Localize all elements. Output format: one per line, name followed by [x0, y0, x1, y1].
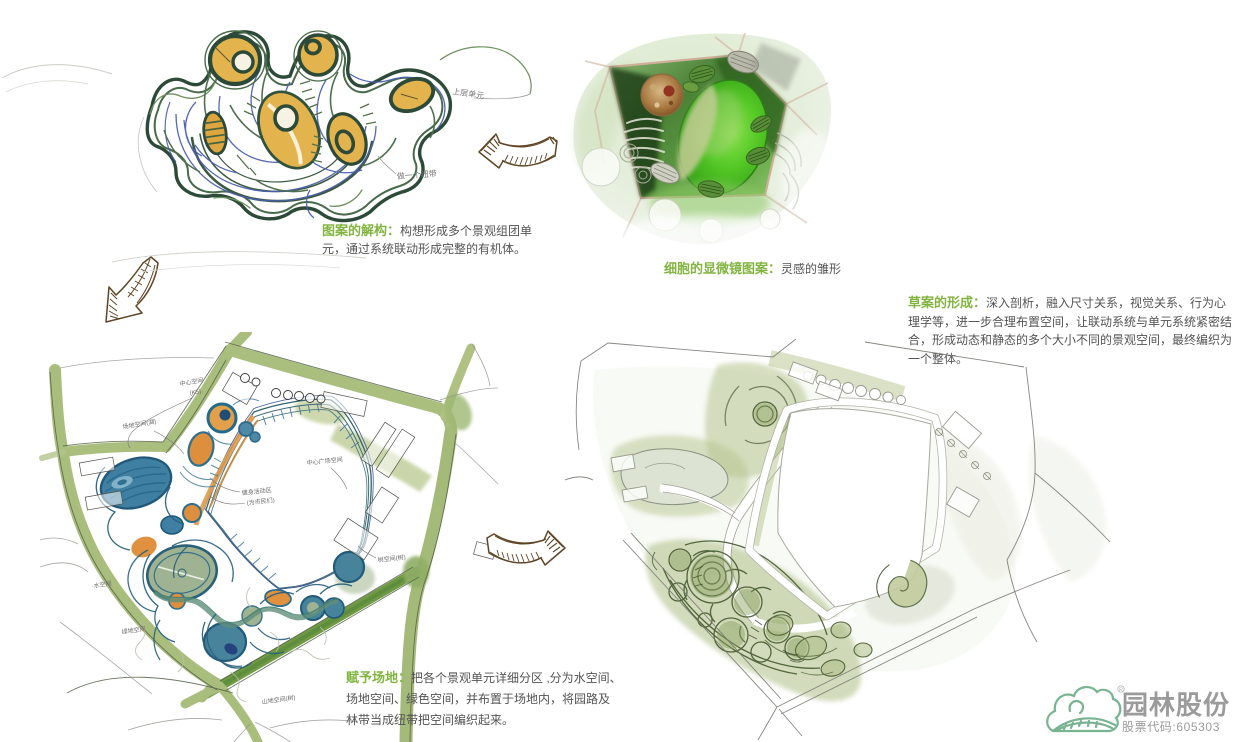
- svg-text:场地空间(湖): 场地空间(湖): [122, 417, 157, 431]
- svg-text:(为市民们): (为市民们): [246, 496, 275, 507]
- svg-text:山地空间(树): 山地空间(树): [261, 693, 296, 706]
- svg-text:中心广场空间: 中心广场空间: [306, 455, 343, 467]
- svg-text:绿地空间: 绿地空间: [121, 625, 146, 636]
- svg-text:中心空间: 中心空间: [179, 376, 204, 388]
- svg-text:做一个纽带: 做一个纽带: [396, 168, 437, 181]
- svg-text:树空间(树): 树空间(树): [377, 553, 406, 564]
- svg-text:上层单元: 上层单元: [452, 86, 485, 100]
- svg-text:健身活动区: 健身活动区: [241, 486, 272, 497]
